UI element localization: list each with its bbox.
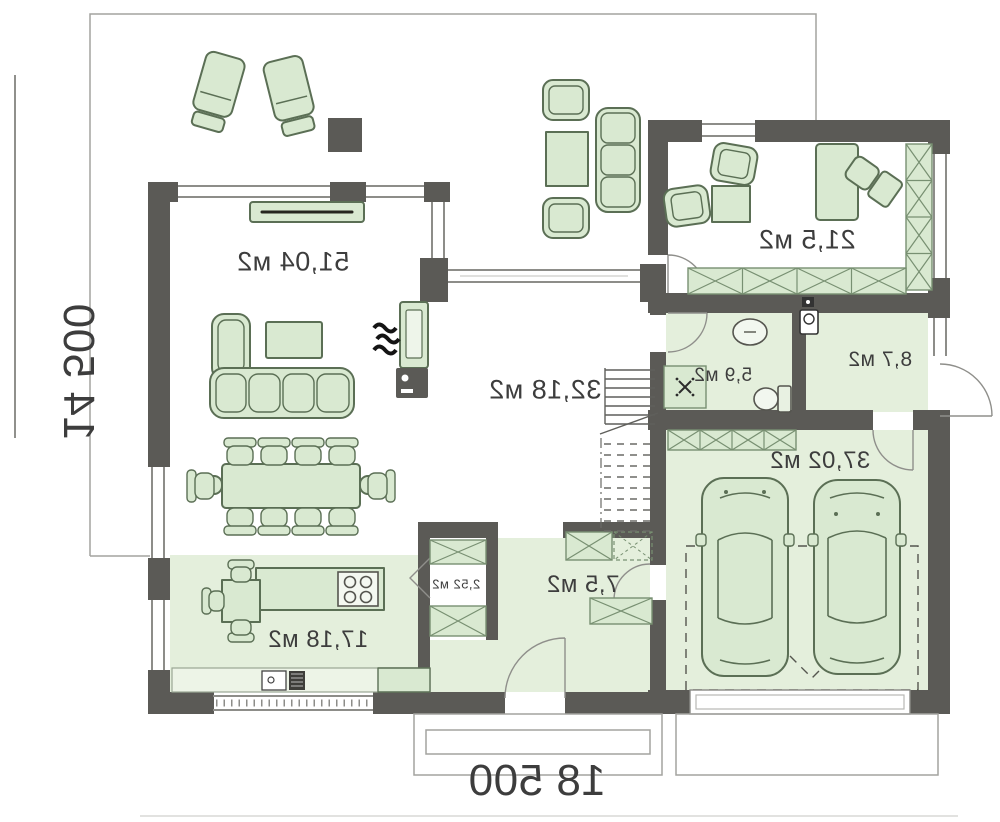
dimension-label-width: 18 500 (468, 756, 606, 806)
sun-lounger (187, 50, 246, 134)
grill-block (328, 118, 362, 152)
room-label-mudroom: 8,7 м2 (848, 348, 912, 372)
floor-plan: 51,04 м2 32,18 м2 21,5 м2 5,9 м2 8,7 м2 … (0, 0, 1000, 822)
dimension-label-height: 14 500 (53, 303, 103, 441)
room-label-office: 21,5 м2 (758, 225, 855, 256)
tv-console (250, 202, 364, 222)
room-label-garage: 37,02 м2 (770, 447, 871, 475)
heat-waves-icon (374, 325, 399, 354)
dining-set (187, 438, 395, 535)
room-label-hallway: 7,5 м2 (547, 571, 620, 599)
room-label-bathroom: 5,9 м2 (694, 365, 752, 387)
armchair (663, 184, 712, 228)
room-label-hall: 32,18 м2 (489, 375, 602, 406)
stove (338, 572, 378, 606)
garage-door (690, 690, 910, 714)
fireplace (374, 302, 428, 398)
car (696, 478, 794, 676)
office-furniture (663, 141, 904, 227)
stairs (600, 368, 658, 532)
armchair (709, 141, 759, 186)
room-label-living: 51,04 м2 (237, 247, 350, 278)
toilet (754, 386, 791, 412)
kitchen-cabinet (378, 668, 430, 692)
floor-plan-drawing (0, 0, 1000, 822)
room-label-pantry: 2,52 м2 (432, 577, 481, 592)
room-label-kitchen: 17,18 м2 (268, 626, 369, 654)
kitchen-counter (172, 668, 430, 692)
car (808, 480, 906, 674)
side-table (712, 186, 750, 222)
sun-lounger (262, 54, 319, 137)
back-entrance-door (940, 364, 992, 416)
kitchen-island (256, 568, 384, 610)
sink (733, 319, 767, 345)
coffee-table (266, 322, 322, 358)
terrace-sofa-set (543, 80, 640, 238)
